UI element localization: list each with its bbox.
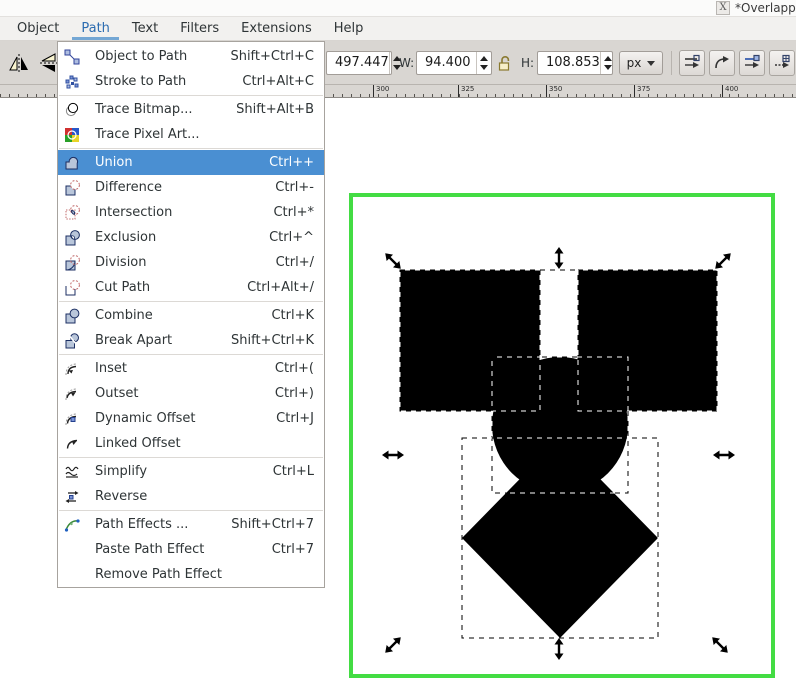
ruler-label: 400 — [722, 85, 738, 97]
scale-stroke-width-icon — [683, 54, 701, 72]
menu-item-label: Combine — [95, 308, 153, 323]
selection-handle-se[interactable] — [709, 634, 731, 656]
intersection-icon — [63, 205, 81, 221]
lock-ratio-button[interactable] — [495, 50, 515, 76]
open-padlock-icon — [497, 54, 513, 72]
move-gradients-toggle[interactable] — [739, 50, 765, 76]
menu-item-label: Intersection — [95, 205, 172, 220]
menu-item-intersection[interactable]: Intersection Ctrl+* — [58, 200, 324, 225]
menubar-item-object[interactable]: Object — [6, 17, 70, 40]
y-field[interactable]: 497.447 — [326, 51, 392, 75]
menu-item-exclusion[interactable]: Exclusion Ctrl+^ — [58, 225, 324, 250]
menubar-item-path[interactable]: Path — [70, 17, 121, 40]
window-icon: X — [716, 1, 730, 15]
menu-item-shortcut: Ctrl+L — [273, 464, 314, 479]
units-value: px — [627, 56, 642, 70]
menu-item-shortcut: Ctrl+K — [271, 308, 314, 323]
menu-item-label: Stroke to Path — [95, 74, 186, 89]
menu-separator — [59, 301, 323, 302]
menu-item-simplify[interactable]: Simplify Ctrl+L — [58, 459, 324, 484]
menu-item-label: Linked Offset — [95, 436, 181, 451]
selection-handle-ne[interactable] — [712, 250, 734, 272]
trace-pixel-art-icon — [63, 127, 81, 143]
flip-horizontal-button[interactable] — [6, 50, 32, 76]
ruler-label: 300 — [373, 85, 389, 97]
menu-item-inset[interactable]: Inset Ctrl+( — [58, 356, 324, 381]
menu-item-label: Union — [95, 155, 133, 170]
menu-item-label: Paste Path Effect — [95, 542, 204, 557]
object-to-path-icon — [63, 49, 81, 65]
menu-item-division[interactable]: Division Ctrl+/ — [58, 250, 324, 275]
move-patterns-toggle[interactable] — [769, 50, 795, 76]
height-field[interactable]: 108.853 — [537, 51, 613, 75]
menubar-item-text[interactable]: Text — [121, 17, 169, 40]
selection-handle-sw[interactable] — [382, 634, 404, 656]
menu-item-shortcut: Shift+Alt+B — [236, 102, 314, 117]
menu-item-shortcut: Ctrl+/ — [276, 255, 314, 270]
union-icon — [63, 155, 81, 171]
menu-item-label: Outset — [95, 386, 138, 401]
menu-item-shortcut: Ctrl+) — [275, 386, 314, 401]
menu-item-shortcut: Ctrl+- — [275, 180, 314, 195]
menu-item-label: Break Apart — [95, 333, 172, 348]
titlebar: X *Overlapp — [0, 0, 796, 17]
trace-bitmap-icon — [63, 102, 81, 118]
cut-path-icon — [63, 280, 81, 296]
menu-item-label: Dynamic Offset — [95, 411, 196, 426]
window-title: *Overlapp — [735, 1, 796, 15]
y-spin-up[interactable] — [390, 52, 391, 63]
menu-item-label: Inset — [95, 361, 127, 376]
menu-item-shortcut: Ctrl++ — [269, 155, 314, 170]
menu-separator — [59, 457, 323, 458]
width-spin-up[interactable] — [477, 52, 491, 63]
right-rectangle-shape[interactable] — [578, 270, 717, 411]
menu-item-shortcut: Ctrl+Alt+/ — [247, 280, 314, 295]
menu-item-object-to-path[interactable]: Object to Path Shift+Ctrl+C — [58, 44, 324, 69]
menu-item-label: Cut Path — [95, 280, 150, 295]
ruler-label: 350 — [546, 85, 562, 97]
linked-offset-icon — [63, 436, 81, 452]
inkscape-window: X *Overlapp Object Path Text Filters Ext… — [0, 0, 796, 692]
menu-item-shortcut: Shift+Ctrl+7 — [231, 517, 314, 532]
inset-icon — [63, 361, 81, 377]
width-spin-down[interactable] — [477, 63, 491, 74]
blank-icon — [63, 542, 81, 558]
menu-item-label: Remove Path Effect — [95, 567, 222, 582]
y-value: 497.447 — [327, 52, 389, 74]
path-menu: Object to Path Shift+Ctrl+C Stroke to Pa… — [57, 41, 325, 588]
menu-item-stroke-to-path[interactable]: Stroke to Path Ctrl+Alt+C — [58, 69, 324, 94]
division-icon — [63, 255, 81, 271]
menu-item-reverse[interactable]: Reverse — [58, 484, 324, 509]
menu-item-label: Exclusion — [95, 230, 156, 245]
diamond-shape[interactable] — [462, 438, 658, 638]
menubar-item-filters[interactable]: Filters — [169, 17, 230, 40]
menu-separator — [59, 510, 323, 511]
menu-item-shortcut: Shift+Ctrl+K — [231, 333, 314, 348]
menu-item-label: Trace Pixel Art... — [95, 127, 200, 142]
ruler-label: 325 — [458, 85, 474, 97]
menu-item-shortcut: Ctrl+( — [275, 361, 314, 376]
menu-item-union[interactable]: Union Ctrl++ — [58, 150, 324, 175]
y-spin-down[interactable] — [390, 63, 391, 74]
stroke-to-path-icon — [63, 74, 81, 90]
height-spin-up[interactable] — [601, 52, 612, 63]
break-apart-icon — [63, 333, 81, 349]
dynamic-offset-icon — [63, 411, 81, 427]
menubar-item-help[interactable]: Help — [323, 17, 375, 40]
simplify-icon — [63, 464, 81, 480]
move-patterns-icon — [773, 54, 791, 72]
menu-item-label: Reverse — [95, 489, 147, 504]
menu-item-label: Division — [95, 255, 147, 270]
width-field[interactable]: 94.400 — [416, 51, 492, 75]
menu-item-linked-offset[interactable]: Linked Offset — [58, 431, 324, 456]
units-dropdown[interactable]: px — [619, 51, 663, 75]
menu-separator — [59, 354, 323, 355]
menu-item-path-effects[interactable]: Path Effects ... Shift+Ctrl+7 — [58, 512, 324, 537]
menu-item-remove-path-effect[interactable]: Remove Path Effect — [58, 562, 324, 587]
selection-handle-nw[interactable] — [382, 250, 404, 272]
menu-item-shortcut: Ctrl+^ — [269, 230, 314, 245]
selection-handle-e[interactable] — [713, 451, 735, 460]
exclusion-icon — [63, 230, 81, 246]
path-effects-icon — [63, 517, 81, 533]
flip-horizontal-icon — [8, 52, 30, 74]
selection-handle-s[interactable] — [555, 638, 564, 660]
outset-icon — [63, 386, 81, 402]
menu-item-trace-pixel-art[interactable]: Trace Pixel Art... — [58, 122, 324, 147]
menu-item-paste-path-effect[interactable]: Paste Path Effect Ctrl+7 — [58, 537, 324, 562]
menu-item-cut-path[interactable]: Cut Path Ctrl+Alt+/ — [58, 275, 324, 300]
difference-icon — [63, 180, 81, 196]
menu-item-label: Object to Path — [95, 49, 187, 64]
scale-stroke-width-toggle[interactable] — [679, 50, 705, 76]
menu-separator — [59, 95, 323, 96]
menubar-item-extensions[interactable]: Extensions — [230, 17, 323, 40]
menu-item-shortcut: Shift+Ctrl+C — [230, 49, 314, 64]
scale-rounded-corners-icon — [713, 54, 731, 72]
menu-item-combine[interactable]: Combine Ctrl+K — [58, 303, 324, 328]
menu-item-label: Difference — [95, 180, 162, 195]
menu-item-break-apart[interactable]: Break Apart Shift+Ctrl+K — [58, 328, 324, 353]
menu-item-label: Trace Bitmap... — [95, 102, 193, 117]
menu-item-shortcut: Ctrl+* — [273, 205, 314, 220]
menu-item-dynamic-offset[interactable]: Dynamic Offset Ctrl+J — [58, 406, 324, 431]
reverse-icon — [63, 489, 81, 505]
left-rectangle-shape[interactable] — [400, 270, 540, 411]
ruler-label: 375 — [634, 85, 650, 97]
selection-handle-n[interactable] — [555, 247, 564, 269]
menu-item-difference[interactable]: Difference Ctrl+- — [58, 175, 324, 200]
height-label: H: — [521, 56, 534, 70]
width-label: W: — [399, 56, 414, 70]
move-gradients-icon — [743, 54, 761, 72]
menubar: Object Path Text Filters Extensions Help — [0, 17, 796, 41]
chevron-down-icon — [647, 61, 655, 66]
menu-separator — [59, 148, 323, 149]
blank-icon — [63, 567, 81, 583]
menu-item-label: Path Effects ... — [95, 517, 188, 532]
menu-item-trace-bitmap[interactable]: Trace Bitmap... Shift+Alt+B — [58, 97, 324, 122]
width-value: 94.400 — [417, 52, 476, 74]
menu-item-shortcut: Ctrl+Alt+C — [242, 74, 314, 89]
menu-item-shortcut: Ctrl+J — [276, 411, 314, 426]
selection-handle-w[interactable] — [382, 451, 404, 460]
menu-item-label: Simplify — [95, 464, 147, 479]
menu-item-outset[interactable]: Outset Ctrl+) — [58, 381, 324, 406]
toolbar-separator — [671, 51, 672, 75]
combine-icon — [63, 308, 81, 324]
menu-item-shortcut: Ctrl+7 — [272, 542, 314, 557]
height-value: 108.853 — [538, 52, 600, 74]
height-spin-down[interactable] — [601, 63, 612, 74]
scale-rounded-corners-toggle[interactable] — [709, 50, 735, 76]
